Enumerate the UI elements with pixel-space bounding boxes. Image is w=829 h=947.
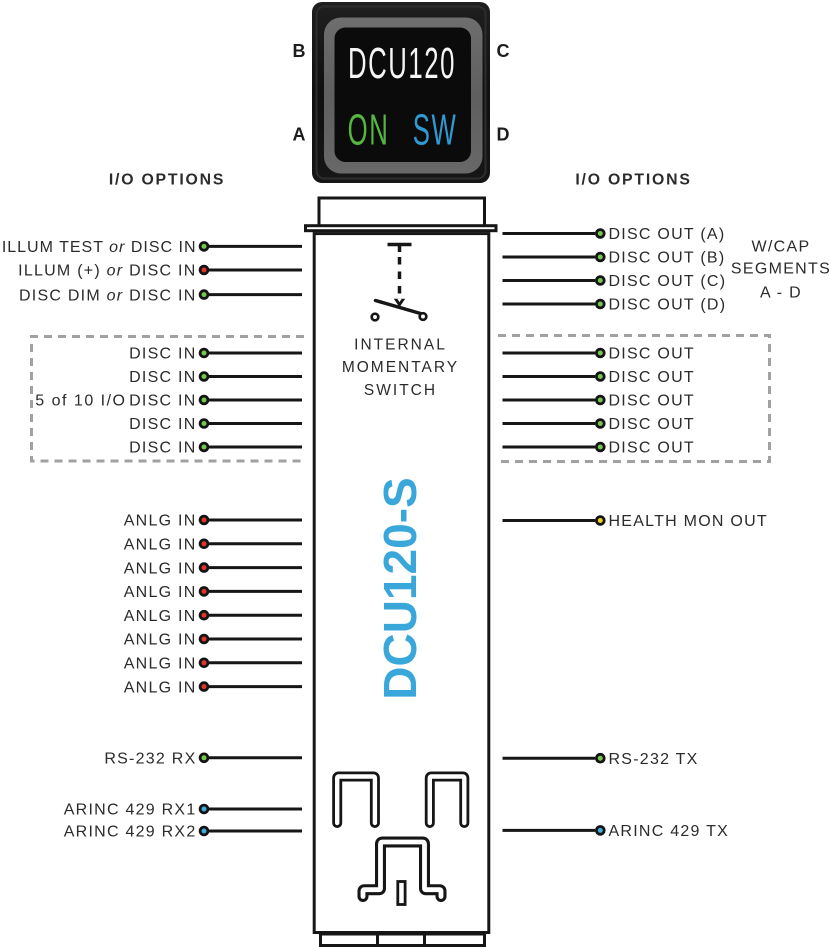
svg-text:A - D: A - D: [760, 285, 802, 302]
svg-text:DISC IN: DISC IN: [129, 416, 196, 433]
svg-text:I/O OPTIONS: I/O OPTIONS: [109, 172, 225, 189]
svg-text:ARINC 429 RX1: ARINC 429 RX1: [64, 802, 197, 819]
svg-text:HEALTH MON OUT: HEALTH MON OUT: [609, 513, 768, 530]
svg-text:DISC OUT: DISC OUT: [609, 416, 695, 433]
svg-text:RS-232 TX: RS-232 TX: [609, 751, 699, 768]
svg-text:DCU120-S: DCU120-S: [374, 477, 426, 699]
svg-text:ANLG IN: ANLG IN: [124, 584, 197, 601]
svg-text:SW: SW: [413, 105, 458, 154]
svg-text:ANLG IN: ANLG IN: [124, 679, 197, 696]
svg-text:DISC OUT: DISC OUT: [609, 393, 695, 410]
svg-text:ARINC 429 TX: ARINC 429 TX: [609, 823, 730, 840]
svg-text:C: C: [497, 41, 510, 61]
svg-text:A: A: [293, 125, 306, 145]
svg-text:DISC IN: DISC IN: [129, 440, 196, 457]
svg-text:DISC IN: DISC IN: [129, 346, 196, 363]
svg-text:DISC DIM or DISC IN: DISC DIM or DISC IN: [19, 287, 197, 304]
svg-text:ANLG IN: ANLG IN: [124, 656, 197, 673]
svg-text:DCU120: DCU120: [348, 39, 456, 88]
svg-text:ANLG IN: ANLG IN: [124, 537, 197, 554]
svg-text:SEGMENTS: SEGMENTS: [731, 261, 829, 278]
svg-text:ANLG IN: ANLG IN: [124, 560, 197, 577]
svg-text:ON: ON: [348, 105, 390, 154]
svg-text:DISC IN: DISC IN: [129, 393, 196, 410]
svg-text:I/O OPTIONS: I/O OPTIONS: [575, 172, 691, 189]
svg-text:ARINC 429 RX2: ARINC 429 RX2: [64, 824, 197, 841]
svg-text:SWITCH: SWITCH: [364, 382, 437, 399]
svg-text:DISC OUT: DISC OUT: [609, 346, 695, 363]
svg-text:DISC OUT: DISC OUT: [609, 440, 695, 457]
svg-text:W/CAP: W/CAP: [752, 239, 811, 256]
svg-text:ILLUM TEST or DISC IN: ILLUM TEST or DISC IN: [2, 239, 197, 256]
svg-text:ILLUM (+) or DISC IN: ILLUM (+) or DISC IN: [18, 263, 196, 280]
svg-text:5 of 10 I/O: 5 of 10 I/O: [35, 393, 126, 410]
svg-text:ANLG IN: ANLG IN: [124, 632, 197, 649]
svg-text:B: B: [293, 41, 306, 61]
svg-text:INTERNAL: INTERNAL: [354, 336, 447, 353]
svg-text:RS-232 RX: RS-232 RX: [104, 751, 196, 768]
svg-text:DISC OUT: DISC OUT: [609, 369, 695, 386]
svg-text:ANLG IN: ANLG IN: [124, 513, 197, 530]
svg-text:D: D: [497, 125, 510, 145]
svg-text:ANLG IN: ANLG IN: [124, 608, 197, 625]
svg-text:DISC OUT (D): DISC OUT (D): [609, 297, 727, 314]
svg-text:DISC OUT (B): DISC OUT (B): [609, 250, 726, 267]
svg-text:MOMENTARY: MOMENTARY: [342, 359, 459, 376]
svg-text:DISC OUT (C): DISC OUT (C): [609, 273, 727, 290]
svg-text:DISC OUT (A): DISC OUT (A): [609, 226, 726, 243]
svg-text:DISC IN: DISC IN: [129, 369, 196, 386]
